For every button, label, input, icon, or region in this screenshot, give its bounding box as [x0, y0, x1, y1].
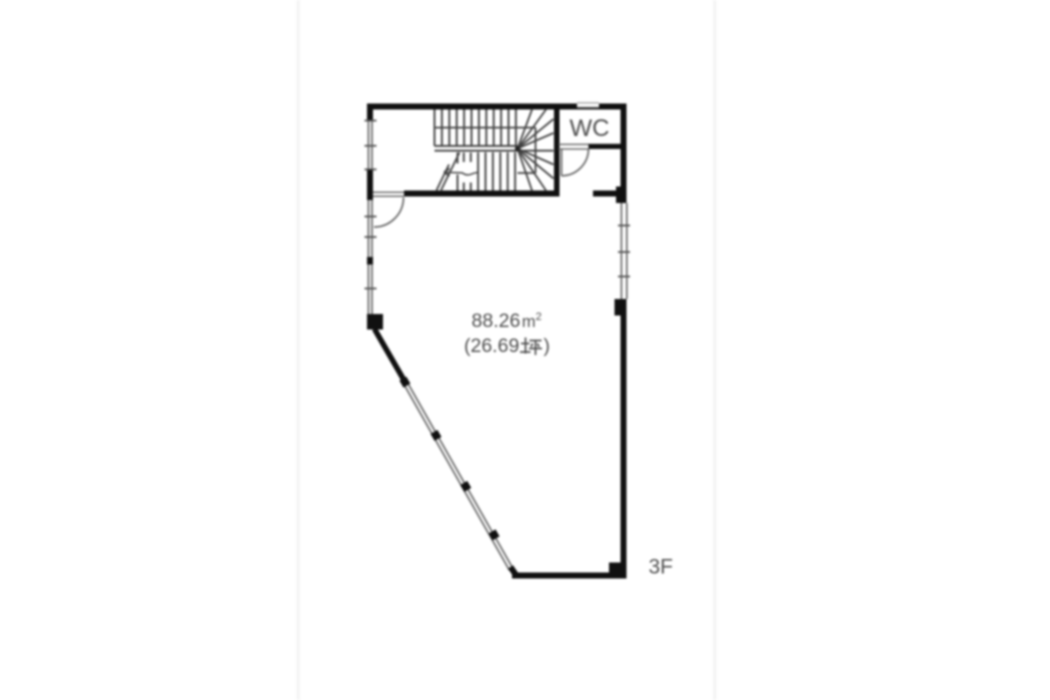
svg-text:WC: WC — [570, 115, 610, 142]
svg-text:(26.69: (26.69 — [464, 335, 519, 357]
svg-text:): ) — [544, 335, 551, 357]
svg-text:3F: 3F — [649, 556, 674, 579]
svg-text:88.26m2: 88.26m2 — [472, 310, 542, 332]
